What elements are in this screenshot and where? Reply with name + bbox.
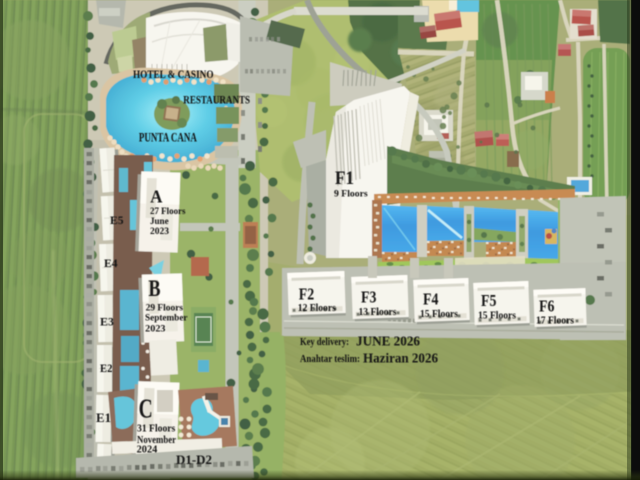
svg-text:September: September	[145, 314, 188, 324]
svg-text:E4: E4	[104, 256, 118, 270]
svg-text:29 Floors: 29 Floors	[146, 302, 184, 312]
svg-text:9 Floors: 9 Floors	[334, 190, 368, 200]
svg-text:17 Floors: 17 Floors	[536, 316, 574, 327]
svg-text:JUNE 2026: JUNE 2026	[356, 334, 420, 349]
svg-text:C: C	[139, 393, 153, 423]
svg-text:F4: F4	[423, 290, 439, 309]
svg-text:2024: 2024	[137, 445, 158, 456]
svg-text:Haziran 2026: Haziran 2026	[363, 351, 438, 366]
svg-text:F3: F3	[361, 288, 376, 307]
svg-text:15 Floors: 15 Floors	[420, 309, 458, 320]
svg-text:E3: E3	[100, 315, 114, 329]
svg-text:F1: F1	[335, 168, 354, 189]
svg-text:B: B	[149, 276, 161, 302]
svg-text:F5: F5	[481, 291, 496, 310]
svg-text:F6: F6	[539, 297, 554, 316]
svg-text:31 Floors: 31 Floors	[137, 423, 175, 434]
svg-text:June: June	[150, 216, 169, 227]
svg-text:E1: E1	[96, 411, 111, 425]
svg-text:A: A	[150, 186, 163, 206]
svg-text:13 Floors: 13 Floors	[359, 307, 397, 318]
svg-text:E2: E2	[100, 361, 113, 375]
svg-text:E5: E5	[110, 213, 124, 227]
svg-text:Anahtar teslim:: Anahtar teslim:	[300, 354, 360, 365]
svg-text:D1-D2: D1-D2	[176, 452, 212, 467]
svg-text:2023: 2023	[145, 325, 166, 335]
svg-text:RESTAURANTS: RESTAURANTS	[183, 93, 250, 107]
svg-text:HOTEL & CASINO: HOTEL & CASINO	[133, 67, 214, 81]
svg-text:PUNTA CANA: PUNTA CANA	[139, 130, 197, 144]
svg-text:F2: F2	[299, 284, 314, 303]
svg-text:Key delivery:: Key delivery:	[300, 337, 349, 348]
svg-text:15 Floors: 15 Floors	[478, 311, 516, 322]
svg-text:12 Floors: 12 Floors	[298, 303, 336, 314]
svg-text:2023: 2023	[150, 227, 169, 237]
